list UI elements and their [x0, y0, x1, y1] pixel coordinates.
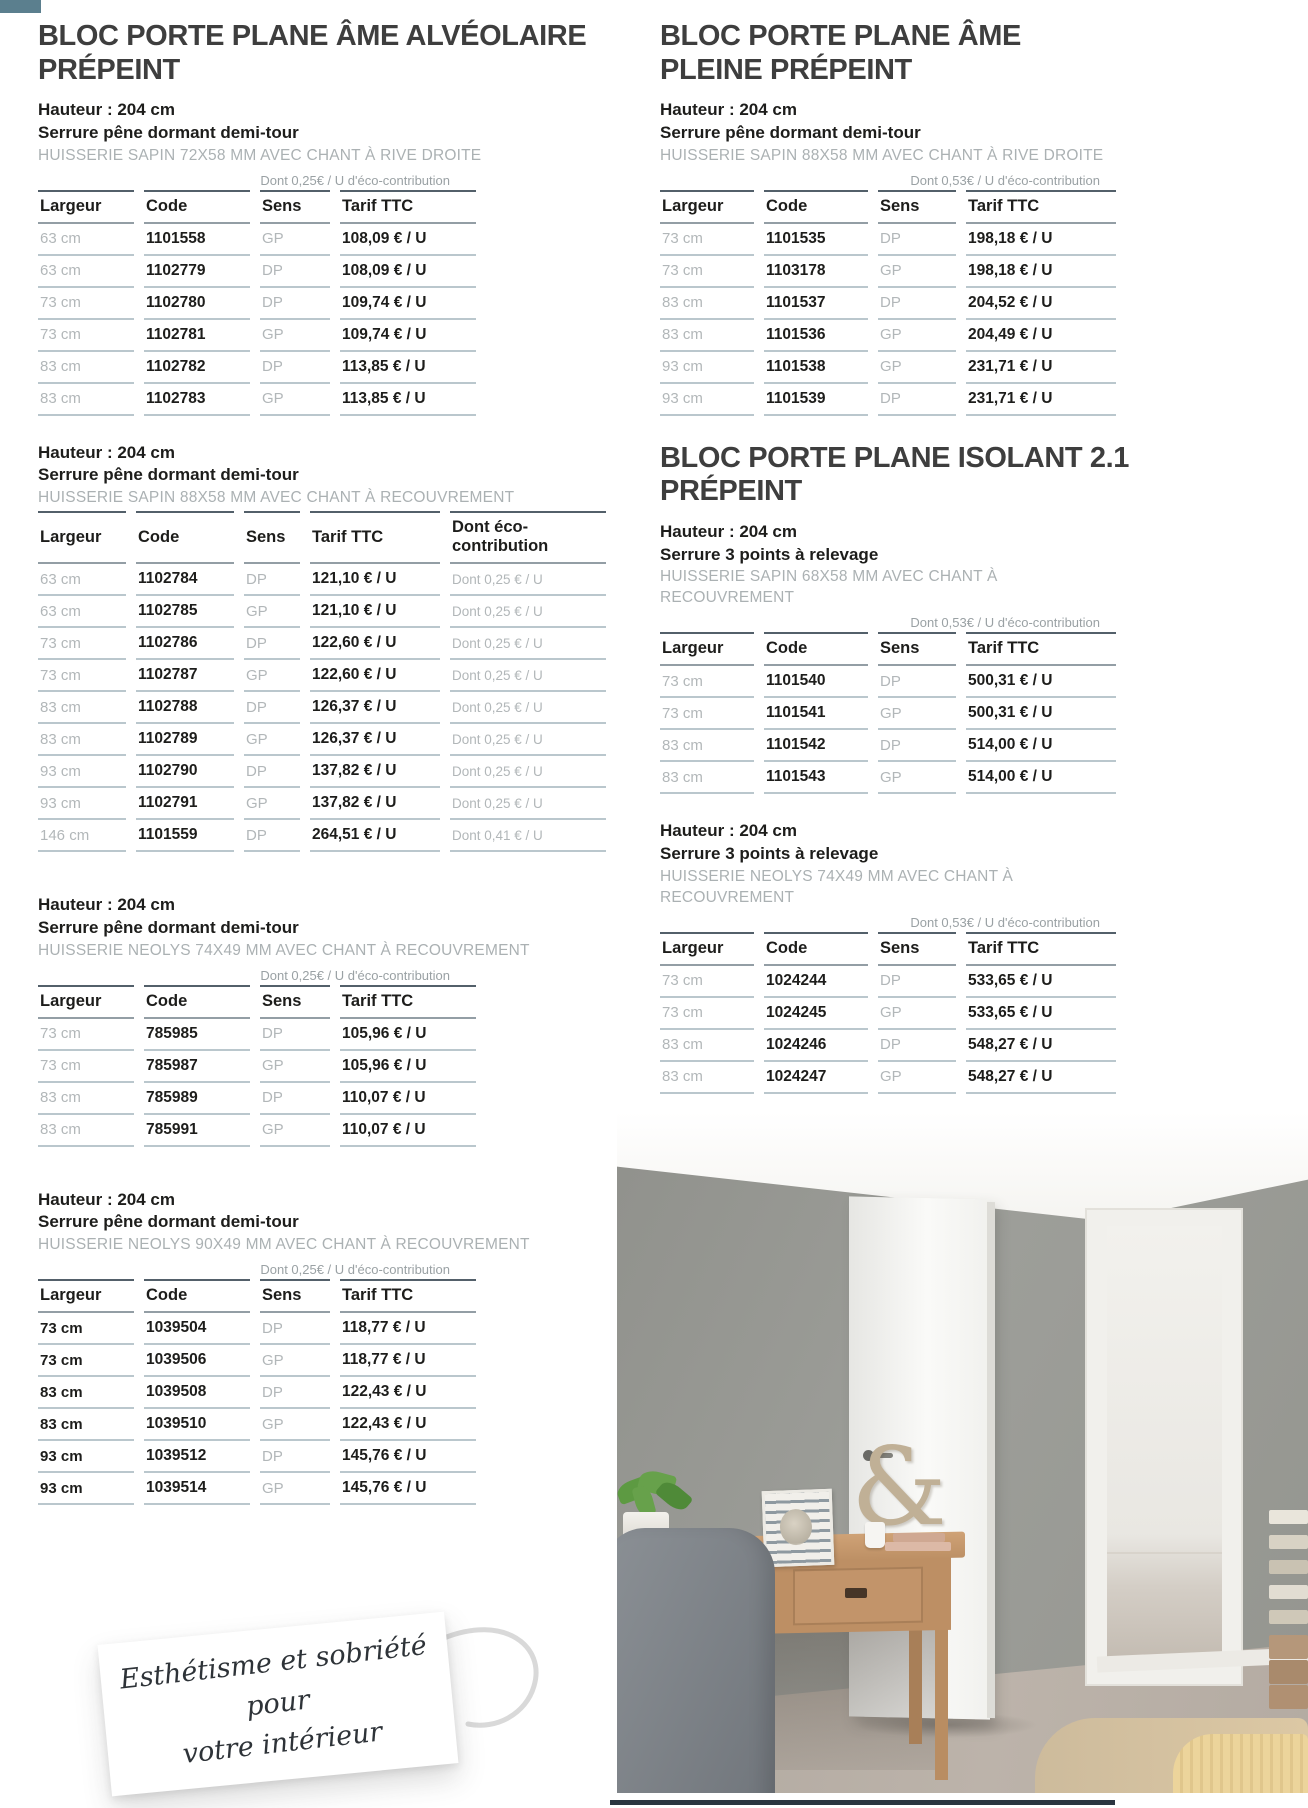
table-row: 146 cm1101559DP264,51 € / UDont 0,41 € /… [38, 820, 606, 852]
tarif-cell: 105,96 € / U [340, 1019, 476, 1051]
table-row: 73 cm1039506GP118,77 € / U [38, 1345, 476, 1377]
price-table: LargeurCodeSensTarif TTC73 cm1024244DP53… [650, 932, 1126, 1094]
column-header: Tarif TTC [966, 932, 1116, 966]
sens-cell: DP [878, 966, 956, 998]
huisserie-line: HUISSERIE SAPIN 88X58 MM AVEC CHANT À RE… [38, 488, 623, 509]
eco-cell: Dont 0,25 € / U [450, 788, 606, 820]
eco-cell: Dont 0,25 € / U [450, 692, 606, 724]
code-cell: 1101535 [764, 224, 868, 256]
sens-cell: DP [878, 384, 956, 416]
code-cell: 1039506 [144, 1345, 250, 1377]
tarif-cell: 145,76 € / U [340, 1473, 476, 1505]
product-title: BLOC PORTE PLANE ÂME ALVÉOLAIRE PRÉPEINT [38, 20, 623, 87]
tarif-cell: 533,65 € / U [966, 966, 1116, 998]
largeur-cell: 83 cm [38, 384, 134, 416]
sens-cell: DP [878, 224, 956, 256]
table-row: 63 cm1102784DP121,10 € / UDont 0,25 € / … [38, 564, 606, 596]
largeur-cell: 83 cm [660, 320, 754, 352]
table-row: 63 cm1102785GP121,10 € / UDont 0,25 € / … [38, 596, 606, 628]
sens-cell: DP [878, 288, 956, 320]
table-row: 93 cm1101538GP231,71 € / U [660, 352, 1116, 384]
tarif-cell: 109,74 € / U [340, 288, 476, 320]
tarif-cell: 204,49 € / U [966, 320, 1116, 352]
huisserie-line: HUISSERIE SAPIN 72X58 MM AVEC CHANT À RI… [38, 146, 623, 167]
code-cell: 1101559 [136, 820, 234, 852]
photo-desk-book [885, 1542, 951, 1551]
eco-cell: Dont 0,25 € / U [450, 564, 606, 596]
sens-cell: GP [878, 998, 956, 1030]
code-cell: 1102787 [136, 660, 234, 692]
largeur-cell: 63 cm [38, 596, 126, 628]
sens-cell: DP [244, 820, 300, 852]
largeur-cell: 73 cm [660, 256, 754, 288]
right-column: BLOC PORTE PLANE ÂME PLEINE PRÉPEINTHaut… [660, 20, 1130, 1120]
sens-cell: GP [244, 724, 300, 756]
sens-cell: GP [878, 698, 956, 730]
sens-cell: DP [878, 730, 956, 762]
tarif-cell: 145,76 € / U [340, 1441, 476, 1473]
table-row: 93 cm1101539DP231,71 € / U [660, 384, 1116, 416]
tarif-cell: 122,60 € / U [310, 628, 440, 660]
column-header: Largeur [38, 985, 134, 1019]
eco-cell: Dont 0,25 € / U [450, 660, 606, 692]
largeur-cell: 63 cm [38, 256, 134, 288]
code-cell: 1039508 [144, 1377, 250, 1409]
table-row: 83 cm785989DP110,07 € / U [38, 1083, 476, 1115]
table-row: 83 cm1102788DP126,37 € / UDont 0,25 € / … [38, 692, 606, 724]
table-row: 83 cm1101536GP204,49 € / U [660, 320, 1116, 352]
table-row: 73 cm1103178GP198,18 € / U [660, 256, 1116, 288]
photo-book-spine [1269, 1560, 1308, 1574]
tarif-cell: 533,65 € / U [966, 998, 1116, 1030]
table-row: 73 cm1101541GP500,31 € / U [660, 698, 1116, 730]
largeur-cell: 63 cm [38, 564, 126, 596]
spec-line: Serrure pêne dormant demi-tour [38, 1211, 623, 1234]
column-header: Tarif TTC [340, 985, 476, 1019]
photo-book-spine [1269, 1635, 1308, 1659]
largeur-cell: 83 cm [38, 1409, 134, 1441]
code-cell: 1102785 [136, 596, 234, 628]
largeur-cell: 83 cm [38, 724, 126, 756]
code-cell: 1024246 [764, 1030, 868, 1062]
column-header: Largeur [38, 190, 134, 224]
tarif-cell: 110,07 € / U [340, 1083, 476, 1115]
table-row: 83 cm1024246DP548,27 € / U [660, 1030, 1116, 1062]
column-header: Tarif TTC [966, 632, 1116, 666]
column-header: Largeur [38, 511, 126, 564]
code-cell: 1024244 [764, 966, 868, 998]
tarif-cell: 122,43 € / U [340, 1409, 476, 1441]
largeur-cell: 73 cm [660, 966, 754, 998]
code-cell: 1101540 [764, 666, 868, 698]
table-row: 93 cm1102790DP137,82 € / UDont 0,25 € / … [38, 756, 606, 788]
largeur-cell: 73 cm [660, 998, 754, 1030]
room-photo: & [617, 1112, 1308, 1793]
sens-cell: GP [260, 1115, 330, 1147]
photo-hallway-floor-line [1107, 1552, 1222, 1554]
tarif-cell: 121,10 € / U [310, 564, 440, 596]
code-cell: 1102779 [144, 256, 250, 288]
tarif-cell: 500,31 € / U [966, 666, 1116, 698]
table-header-row: LargeurCodeSensTarif TTC [38, 190, 476, 224]
table-row: 83 cm1102789GP126,37 € / UDont 0,25 € / … [38, 724, 606, 756]
table-body: 73 cm1101535DP198,18 € / U73 cm1103178GP… [660, 224, 1116, 416]
column-header: Sens [260, 985, 330, 1019]
code-cell: 1102784 [136, 564, 234, 596]
code-cell: 1102781 [144, 320, 250, 352]
table-body: 73 cm1039504DP118,77 € / U73 cm1039506GP… [38, 1313, 476, 1505]
sens-cell: DP [260, 256, 330, 288]
variant-block: Hauteur : 204 cmSerrure pêne dormant dem… [38, 894, 623, 1146]
column-header: Largeur [660, 932, 754, 966]
photo-picture-frame [762, 1489, 835, 1567]
left-column: BLOC PORTE PLANE ÂME ALVÉOLAIRE PRÉPEINT… [38, 20, 623, 1531]
column-header: Tarif TTC [966, 190, 1116, 224]
table-row: 73 cm1024244DP533,65 € / U [660, 966, 1116, 998]
code-cell: 1102789 [136, 724, 234, 756]
sens-cell: GP [878, 256, 956, 288]
spec-line: Hauteur : 204 cm [38, 1189, 623, 1212]
table-header-row: LargeurCodeSensTarif TTCDont éco-contrib… [38, 511, 606, 564]
table-row: 73 cm1102787GP122,60 € / UDont 0,25 € / … [38, 660, 606, 692]
largeur-cell: 73 cm [38, 660, 126, 692]
code-cell: 1103178 [764, 256, 868, 288]
code-cell: 1039512 [144, 1441, 250, 1473]
sens-cell: DP [260, 1313, 330, 1345]
table-header: LargeurCodeSensTarif TTC [660, 932, 1116, 966]
table-row: 73 cm1102780DP109,74 € / U [38, 288, 476, 320]
column-header: Sens [878, 932, 956, 966]
code-cell: 1102780 [144, 288, 250, 320]
table-body: 73 cm785985DP105,96 € / U73 cm785987GP10… [38, 1019, 476, 1147]
largeur-cell: 93 cm [38, 788, 126, 820]
largeur-cell: 83 cm [660, 288, 754, 320]
note-card-text: Esthétisme et sobriété pour votre intéri… [98, 1624, 458, 1784]
column-header: Dont éco-contribution [450, 511, 606, 564]
largeur-cell: 73 cm [38, 1345, 134, 1377]
photo-book-spine [1269, 1585, 1308, 1599]
price-table: LargeurCodeSensTarif TTC73 cm1101540DP50… [650, 632, 1126, 794]
largeur-cell: 73 cm [38, 320, 134, 352]
column-header: Sens [878, 190, 956, 224]
code-cell: 1102782 [144, 352, 250, 384]
largeur-cell: 93 cm [660, 384, 754, 416]
eco-cell: Dont 0,25 € / U [450, 596, 606, 628]
product-title: BLOC PORTE PLANE ISOLANT 2.1 PRÉPEINT [660, 442, 1130, 509]
tarif-cell: 231,71 € / U [966, 384, 1116, 416]
price-table: LargeurCodeSensTarif TTC73 cm785985DP105… [28, 985, 486, 1147]
code-cell: 1024247 [764, 1062, 868, 1094]
sens-cell: DP [260, 1019, 330, 1051]
table-row: 63 cm1102779DP108,09 € / U [38, 256, 476, 288]
page-corner-mark [0, 0, 41, 13]
huisserie-line: HUISSERIE NEOLYS 74X49 MM AVEC CHANT À R… [38, 941, 623, 962]
sens-cell: GP [260, 320, 330, 352]
eco-contribution-note: Dont 0,53€ / U d'éco-contribution [660, 615, 1110, 630]
eco-cell: Dont 0,41 € / U [450, 820, 606, 852]
largeur-cell: 73 cm [38, 628, 126, 660]
column-header: Tarif TTC [340, 1279, 476, 1313]
photo-book-spine [1269, 1660, 1308, 1684]
tarif-cell: 110,07 € / U [340, 1115, 476, 1147]
tarif-cell: 137,82 € / U [310, 756, 440, 788]
largeur-cell: 83 cm [660, 1062, 754, 1094]
spec-line: Serrure pêne dormant demi-tour [660, 122, 1130, 145]
table-header: LargeurCodeSensTarif TTC [660, 632, 1116, 666]
largeur-cell: 73 cm [660, 666, 754, 698]
spec-line: Hauteur : 204 cm [660, 99, 1130, 122]
photo-hallway [1107, 1226, 1222, 1666]
code-cell: 1102790 [136, 756, 234, 788]
table-header: LargeurCodeSensTarif TTCDont éco-contrib… [38, 511, 606, 564]
code-cell: 1039504 [144, 1313, 250, 1345]
sens-cell: DP [244, 692, 300, 724]
table-body: 63 cm1102784DP121,10 € / UDont 0,25 € / … [38, 564, 606, 852]
tarif-cell: 137,82 € / U [310, 788, 440, 820]
tarif-cell: 113,85 € / U [340, 384, 476, 416]
photo-book-spine [1269, 1535, 1308, 1549]
spec-line: Hauteur : 204 cm [38, 442, 623, 465]
code-cell: 1101536 [764, 320, 868, 352]
largeur-cell: 63 cm [38, 224, 134, 256]
largeur-cell: 83 cm [38, 1115, 134, 1147]
code-cell: 785989 [144, 1083, 250, 1115]
eco-contribution-note: Dont 0,53€ / U d'éco-contribution [660, 915, 1110, 930]
eco-contribution-note: Dont 0,53€ / U d'éco-contribution [660, 173, 1110, 188]
spec-line: Serrure pêne dormant demi-tour [38, 917, 623, 940]
variant-block: Hauteur : 204 cmSerrure pêne dormant dem… [38, 442, 623, 852]
eco-cell: Dont 0,25 € / U [450, 724, 606, 756]
sens-cell: GP [878, 352, 956, 384]
tarif-cell: 122,43 € / U [340, 1377, 476, 1409]
variant-block: Hauteur : 204 cmSerrure 3 points à relev… [660, 521, 1130, 794]
price-table: LargeurCodeSensTarif TTC63 cm1101558GP10… [28, 190, 486, 416]
table-body: 63 cm1101558GP108,09 € / U63 cm1102779DP… [38, 224, 476, 416]
sens-cell: GP [878, 320, 956, 352]
table-row: 73 cm785985DP105,96 € / U [38, 1019, 476, 1051]
sens-cell: GP [244, 788, 300, 820]
largeur-cell: 83 cm [38, 1083, 134, 1115]
tarif-cell: 500,31 € / U [966, 698, 1116, 730]
table-body: 73 cm1101540DP500,31 € / U73 cm1101541GP… [660, 666, 1116, 794]
code-cell: 1101539 [764, 384, 868, 416]
sens-cell: DP [260, 1377, 330, 1409]
price-table: LargeurCodeSensTarif TTCDont éco-contrib… [28, 511, 616, 852]
column-header: Tarif TTC [340, 190, 476, 224]
sens-cell: DP [244, 564, 300, 596]
code-cell: 785987 [144, 1051, 250, 1083]
largeur-cell: 83 cm [660, 1030, 754, 1062]
largeur-cell: 83 cm [660, 762, 754, 794]
variant-block: Hauteur : 204 cmSerrure pêne dormant dem… [38, 99, 623, 415]
sens-cell: GP [260, 1345, 330, 1377]
huisserie-line: HUISSERIE NEOLYS 74X49 MM AVEC CHANT À R… [660, 867, 1130, 909]
spec-line: Serrure 3 points à relevage [660, 544, 1130, 567]
largeur-cell: 93 cm [38, 1441, 134, 1473]
table-row: 93 cm1039512DP145,76 € / U [38, 1441, 476, 1473]
code-cell: 785985 [144, 1019, 250, 1051]
table-header-row: LargeurCodeSensTarif TTC [660, 632, 1116, 666]
table-header-row: LargeurCodeSensTarif TTC [38, 985, 476, 1019]
code-cell: 1101541 [764, 698, 868, 730]
column-header: Largeur [660, 632, 754, 666]
photo-book-spine [1269, 1610, 1308, 1624]
table-row: 83 cm1101542DP514,00 € / U [660, 730, 1116, 762]
table-row: 73 cm785987GP105,96 € / U [38, 1051, 476, 1083]
largeur-cell: 93 cm [660, 352, 754, 384]
table-header-row: LargeurCodeSensTarif TTC [38, 1279, 476, 1313]
sens-cell: DP [260, 288, 330, 320]
photo-drawer-handle [845, 1588, 867, 1598]
largeur-cell: 73 cm [660, 224, 754, 256]
eco-contribution-note: Dont 0,25€ / U d'éco-contribution [38, 173, 460, 188]
code-cell: 1101543 [764, 762, 868, 794]
sens-cell: DP [878, 666, 956, 698]
photo-book-spine [1269, 1510, 1308, 1524]
sens-cell: DP [260, 1083, 330, 1115]
bottom-divider-line [610, 1800, 1115, 1805]
table-row: 93 cm1102791GP137,82 € / UDont 0,25 € / … [38, 788, 606, 820]
huisserie-line: HUISSERIE NEOLYS 90X49 MM AVEC CHANT À R… [38, 1235, 623, 1256]
table-header: LargeurCodeSensTarif TTC [38, 190, 476, 224]
code-cell: 1101542 [764, 730, 868, 762]
photo-chair [617, 1528, 775, 1793]
tarif-cell: 198,18 € / U [966, 256, 1116, 288]
column-header: Code [764, 632, 868, 666]
column-header: Largeur [660, 190, 754, 224]
huisserie-line: HUISSERIE SAPIN 68X58 MM AVEC CHANT À RE… [660, 567, 1130, 609]
table-row: 83 cm785991GP110,07 € / U [38, 1115, 476, 1147]
sens-cell: DP [260, 1441, 330, 1473]
tarif-cell: 204,52 € / U [966, 288, 1116, 320]
largeur-cell: 73 cm [660, 698, 754, 730]
price-table: LargeurCodeSensTarif TTC73 cm1101535DP19… [650, 190, 1126, 416]
table-header-row: LargeurCodeSensTarif TTC [660, 190, 1116, 224]
table-body: 73 cm1024244DP533,65 € / U73 cm1024245GP… [660, 966, 1116, 1094]
tarif-cell: 126,37 € / U [310, 724, 440, 756]
photo-desk-book [893, 1533, 945, 1542]
table-row: 83 cm1102782DP113,85 € / U [38, 352, 476, 384]
note-card: Esthétisme et sobriété pour votre intéri… [98, 1612, 459, 1797]
column-header: Code [764, 190, 868, 224]
column-header: Largeur [38, 1279, 134, 1313]
table-row: 73 cm1024245GP533,65 € / U [660, 998, 1116, 1030]
sens-cell: GP [878, 762, 956, 794]
code-cell: 1102791 [136, 788, 234, 820]
code-cell: 1101558 [144, 224, 250, 256]
eco-contribution-note: Dont 0,25€ / U d'éco-contribution [38, 968, 460, 983]
tarif-cell: 126,37 € / U [310, 692, 440, 724]
table-row: 83 cm1102783GP113,85 € / U [38, 384, 476, 416]
tarif-cell: 108,09 € / U [340, 224, 476, 256]
code-cell: 1024245 [764, 998, 868, 1030]
table-row: 73 cm1102786DP122,60 € / UDont 0,25 € / … [38, 628, 606, 660]
column-header: Code [144, 190, 250, 224]
tarif-cell: 122,60 € / U [310, 660, 440, 692]
photo-book-stack [1269, 1510, 1308, 1706]
tarif-cell: 231,71 € / U [966, 352, 1116, 384]
photo-door-edge [987, 1202, 995, 1718]
tarif-cell: 198,18 € / U [966, 224, 1116, 256]
variant-block: Hauteur : 204 cmSerrure pêne dormant dem… [38, 1189, 623, 1505]
tarif-cell: 118,77 € / U [340, 1345, 476, 1377]
sens-cell: GP [878, 1062, 956, 1094]
spec-line: Hauteur : 204 cm [38, 894, 623, 917]
spec-line: Serrure pêne dormant demi-tour [38, 464, 623, 487]
code-cell: 1102786 [136, 628, 234, 660]
column-header: Code [764, 932, 868, 966]
sens-cell: DP [244, 628, 300, 660]
sens-cell: GP [244, 596, 300, 628]
sens-cell: GP [260, 224, 330, 256]
sens-cell: GP [244, 660, 300, 692]
largeur-cell: 83 cm [38, 692, 126, 724]
product-title: BLOC PORTE PLANE ÂME PLEINE PRÉPEINT [660, 20, 1130, 87]
code-cell: 1102788 [136, 692, 234, 724]
column-header: Tarif TTC [310, 511, 440, 564]
sens-cell: GP [260, 1051, 330, 1083]
column-header: Code [144, 1279, 250, 1313]
spec-line: Hauteur : 204 cm [660, 521, 1130, 544]
largeur-cell: 146 cm [38, 820, 126, 852]
tarif-cell: 108,09 € / U [340, 256, 476, 288]
sens-cell: GP [260, 384, 330, 416]
table-row: 83 cm1101543GP514,00 € / U [660, 762, 1116, 794]
largeur-cell: 93 cm [38, 1473, 134, 1505]
table-row: 63 cm1101558GP108,09 € / U [38, 224, 476, 256]
tarif-cell: 109,74 € / U [340, 320, 476, 352]
table-row: 73 cm1101535DP198,18 € / U [660, 224, 1116, 256]
code-cell: 1039510 [144, 1409, 250, 1441]
tarif-cell: 105,96 € / U [340, 1051, 476, 1083]
table-header-row: LargeurCodeSensTarif TTC [660, 932, 1116, 966]
largeur-cell: 73 cm [38, 1313, 134, 1345]
spec-line: Hauteur : 204 cm [660, 820, 1130, 843]
table-row: 73 cm1102781GP109,74 € / U [38, 320, 476, 352]
column-header: Sens [260, 1279, 330, 1313]
column-header: Code [144, 985, 250, 1019]
sens-cell: DP [260, 352, 330, 384]
largeur-cell: 73 cm [38, 288, 134, 320]
tarif-cell: 548,27 € / U [966, 1062, 1116, 1094]
largeur-cell: 73 cm [38, 1019, 134, 1051]
table-header: LargeurCodeSensTarif TTC [660, 190, 1116, 224]
photo-book-spine [1269, 1685, 1308, 1709]
sens-cell: DP [244, 756, 300, 788]
table-header: LargeurCodeSensTarif TTC [38, 1279, 476, 1313]
largeur-cell: 73 cm [38, 1051, 134, 1083]
table-row: 93 cm1039514GP145,76 € / U [38, 1473, 476, 1505]
eco-cell: Dont 0,25 € / U [450, 628, 606, 660]
photo-cup [865, 1522, 885, 1548]
code-cell: 1039514 [144, 1473, 250, 1505]
huisserie-line: HUISSERIE SAPIN 88X58 MM AVEC CHANT À RI… [660, 146, 1130, 167]
table-row: 73 cm1039504DP118,77 € / U [38, 1313, 476, 1345]
spec-line: Serrure 3 points à relevage [660, 843, 1130, 866]
sens-cell: GP [260, 1473, 330, 1505]
code-cell: 1102783 [144, 384, 250, 416]
largeur-cell: 93 cm [38, 756, 126, 788]
sens-cell: GP [260, 1409, 330, 1441]
catalog-page: BLOC PORTE PLANE ÂME ALVÉOLAIRE PRÉPEINT… [0, 0, 1308, 1808]
table-row: 83 cm1024247GP548,27 € / U [660, 1062, 1116, 1094]
photo-desk-leg [935, 1628, 948, 1780]
tarif-cell: 548,27 € / U [966, 1030, 1116, 1062]
eco-cell: Dont 0,25 € / U [450, 756, 606, 788]
eco-contribution-note: Dont 0,25€ / U d'éco-contribution [38, 1262, 460, 1277]
tarif-cell: 118,77 € / U [340, 1313, 476, 1345]
tarif-cell: 121,10 € / U [310, 596, 440, 628]
